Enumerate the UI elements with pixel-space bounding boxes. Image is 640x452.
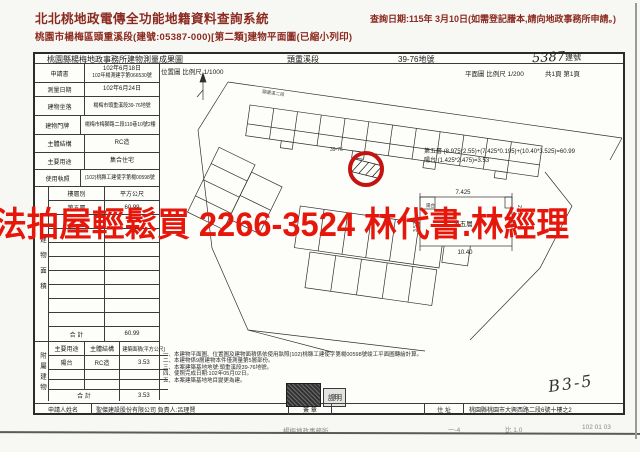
annex-total-label: 合 計 <box>49 390 120 401</box>
row-value: 102年6月18日 102年楊測建字第066530號 <box>85 64 159 82</box>
annex-side-label: 附屬建物 <box>35 342 49 401</box>
application-number: 102年楊測建字第066530號 <box>92 73 151 80</box>
annex-empty-row <box>49 370 168 380</box>
area-empty-row <box>49 285 159 299</box>
row-label: 建物門牌 <box>35 116 81 134</box>
area-total-label: 合 計 <box>49 327 105 341</box>
row-value: 楊梅市梅獅路二段110巷10號2樓 <box>84 116 155 134</box>
annex-col-use: 主要用途 <box>49 342 85 355</box>
table-row-survey-date: 測量日期 102年6月24日 <box>35 83 159 97</box>
query-date: 查詢日期:115年 3月10日(如需登記謄本,請向地政事務所申請。) <box>370 12 616 25</box>
applicant-name: 聖傑建設股份有限公司 負責人:呂理賢 <box>92 404 288 415</box>
application-date: 102年6月18日 <box>103 66 141 73</box>
applicant-address: 桃園縣桃園市大興西路二段6號十樓之2 <box>464 404 623 415</box>
annex-col-structure: 主體結構 <box>85 342 120 355</box>
address-label: 住 址 <box>424 404 464 415</box>
scan-page-right-edge <box>635 3 637 439</box>
annex-header-row: 主要用途 主體結構 建築面積(平方公尺) <box>49 342 168 356</box>
annex-building-section: 附屬建物 主要用途 主體結構 建築面積(平方公尺) 陽台 RC造 3.53 合 … <box>35 342 159 401</box>
annex-data-row: 陽台 RC造 3.53 <box>49 356 168 370</box>
row-value: 集合住宅 <box>85 153 159 169</box>
document-subtitle: 桃園市楊梅區頭重溪段(建號:05387-000)[第二類]建物平面圖(已縮小列印… <box>35 29 352 43</box>
area-empty-row <box>49 299 159 313</box>
building-strip <box>245 105 542 184</box>
plan-dim-bottom: 10.40 <box>457 250 473 256</box>
applicant-label: 申請人姓名 <box>35 404 92 415</box>
land-registry-query-screen: 北北桃地政電傳全功能地籍資料查詢系統 查詢日期:115年 3月10日(如需登記謄… <box>0 0 640 452</box>
area-empty-row <box>49 257 159 271</box>
row-value: 楊梅市頭重溪段39-76地號 <box>89 97 156 115</box>
boundary-line <box>198 82 228 130</box>
row-label: 主體結構 <box>35 135 85 152</box>
table-row-address-plate: 建物門牌 楊梅市梅獅路二段110巷10號2樓 <box>35 116 159 135</box>
table-row-license: 使用執照 (102)桃縣工建使字第楊00598號 <box>35 170 159 187</box>
row-label: 申請書 <box>35 64 85 82</box>
table-row-usage: 主要用途 集合住宅 <box>35 153 159 170</box>
boundary-line <box>248 330 425 351</box>
row-label: 建物坐落 <box>35 97 85 115</box>
area-total-row: 合 計 60.99 <box>49 327 159 341</box>
row-label: 使用執照 <box>35 170 81 186</box>
annex-empty-row <box>49 380 168 390</box>
annex-use: 陽台 <box>49 356 85 369</box>
north-arrow-icon <box>197 73 206 100</box>
table-row-structure: 主體結構 RC造 <box>35 135 159 153</box>
boundary-line <box>610 138 622 160</box>
system-title: 北北桃地政電傳全功能地籍資料查詢系統 <box>35 8 269 27</box>
table-row-location: 建物坐落 楊梅市頭重溪段39-76地號 <box>35 97 159 116</box>
parcel-number-label: 39-76 <box>330 147 343 153</box>
plan-dim-top: 7.425 <box>455 190 471 196</box>
row-label: 測量日期 <box>35 83 85 96</box>
row-value: RC造 <box>85 135 159 152</box>
area-empty-row <box>49 271 159 285</box>
building-number-unit: 建號 <box>565 53 581 63</box>
area-total-value: 60.99 <box>105 327 159 341</box>
building-cluster-lower <box>305 252 437 305</box>
table-row-application: 申請書 102年6月18日 102年楊測建字第066530號 <box>35 64 159 83</box>
annex-total-row: 合 計 3.53 <box>49 390 168 401</box>
area-empty-row <box>49 313 159 327</box>
row-value: (102)桃縣工建使字第楊00598號 <box>85 170 155 186</box>
annex-structure: RC造 <box>85 356 120 369</box>
auction-watermark: 法拍屋輕鬆買 2266-3524 林代書.林經理 <box>0 197 620 246</box>
row-value: 102年6月24日 <box>85 83 159 96</box>
row-label: 主要用途 <box>35 153 85 169</box>
footer-fragment: 102 01 03 <box>582 424 611 431</box>
